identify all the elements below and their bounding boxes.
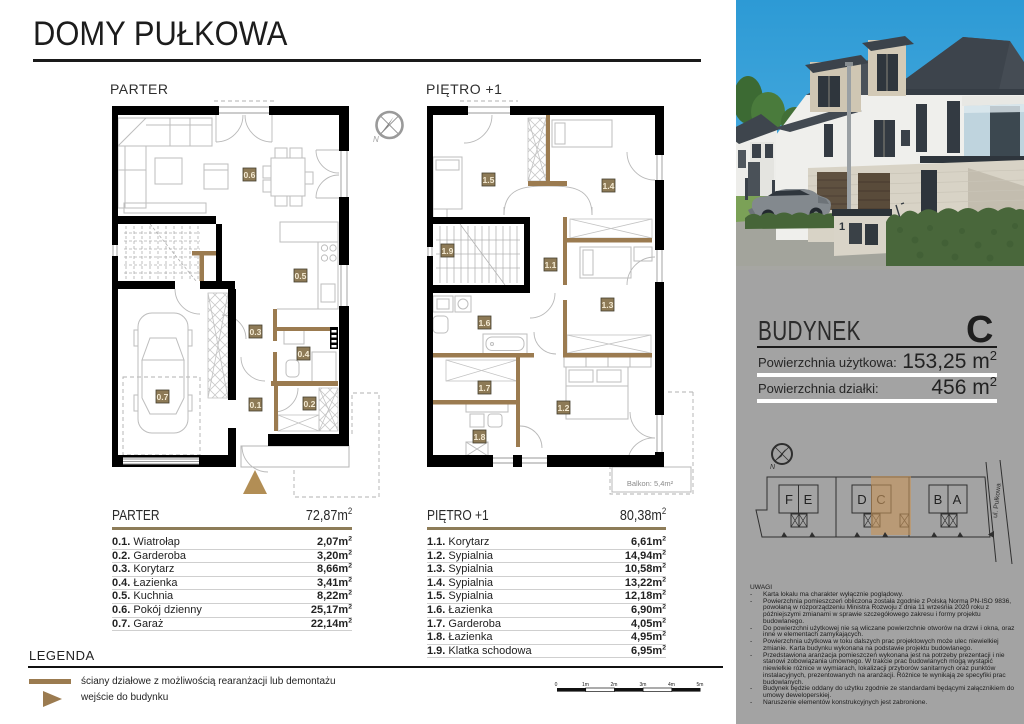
svg-text:N: N — [770, 464, 776, 471]
svg-text:1.7: 1.7 — [479, 383, 491, 393]
svg-text:0.3: 0.3 — [250, 327, 262, 337]
svg-text:Balkon: 5,4m²: Balkon: 5,4m² — [627, 479, 674, 488]
svg-text:1.4: 1.4 — [603, 181, 615, 191]
svg-text:F: F — [785, 492, 793, 507]
svg-text:0: 0 — [555, 682, 558, 688]
svg-text:N: N — [373, 135, 379, 144]
svg-text:1: 1 — [839, 221, 845, 233]
svg-text:1.8: 1.8 — [474, 432, 486, 442]
svg-text:0.4: 0.4 — [298, 349, 310, 359]
svg-text:D: D — [857, 492, 866, 507]
svg-text:A: A — [953, 492, 962, 507]
svg-text:1.2: 1.2 — [558, 403, 570, 413]
svg-text:ul. Pułkowa: ul. Pułkowa — [992, 483, 1003, 519]
svg-text:B: B — [934, 492, 943, 507]
svg-text:2m: 2m — [611, 682, 618, 688]
svg-text:E: E — [804, 492, 813, 507]
svg-text:3m: 3m — [640, 682, 647, 688]
svg-text:4m: 4m — [668, 682, 675, 688]
svg-text:0.5: 0.5 — [295, 271, 307, 281]
svg-text:1.3: 1.3 — [602, 300, 614, 310]
svg-text:1.1: 1.1 — [545, 260, 557, 270]
svg-text:0.1: 0.1 — [250, 400, 262, 410]
svg-text:1.9: 1.9 — [442, 246, 454, 256]
svg-text:0.2: 0.2 — [304, 399, 316, 409]
svg-text:1m: 1m — [582, 682, 589, 688]
svg-text:0.6: 0.6 — [244, 170, 256, 180]
svg-text:0.7: 0.7 — [157, 392, 169, 402]
svg-text:5m: 5m — [697, 682, 704, 688]
svg-text:1.5: 1.5 — [483, 175, 495, 185]
svg-text:1.6: 1.6 — [479, 318, 491, 328]
